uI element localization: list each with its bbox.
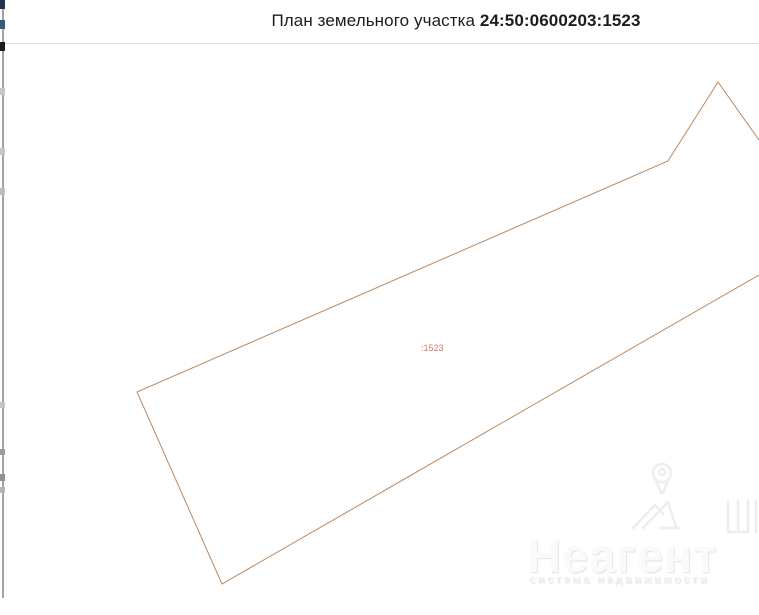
watermark-tagline: система недвижимости <box>529 574 709 586</box>
buildings-icon <box>728 501 756 532</box>
page-title-prefix: План земельного участка <box>271 11 475 30</box>
edge-mark <box>0 20 5 29</box>
person-icon <box>633 502 680 528</box>
parcel-label: :1523 <box>421 343 444 353</box>
cadastral-number: 24:50:0600203:1523 <box>480 11 641 30</box>
page: План земельного участка 24:50:0600203:15… <box>0 0 759 615</box>
location-pin-icon <box>653 464 671 493</box>
page-title: План земельного участка 24:50:0600203:15… <box>271 11 640 31</box>
edge-mark <box>0 0 5 9</box>
